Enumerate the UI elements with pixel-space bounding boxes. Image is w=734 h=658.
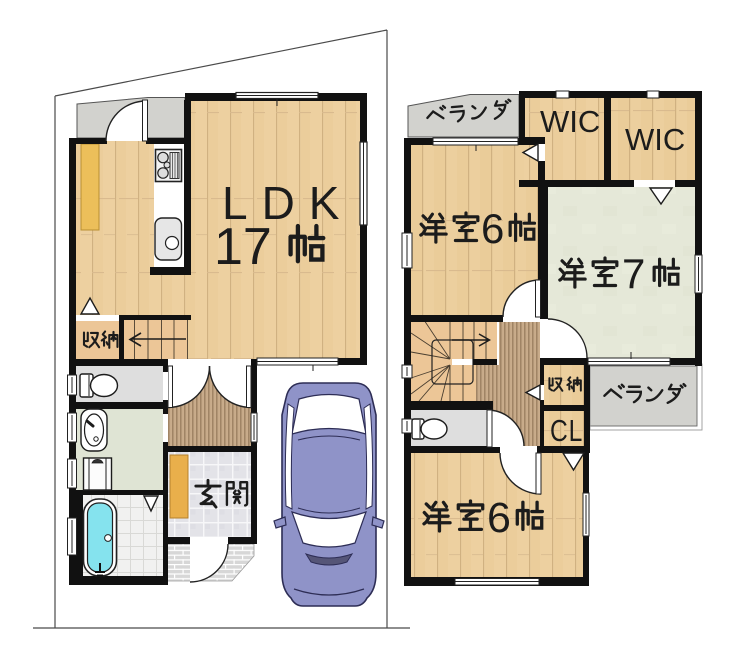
svg-text:7: 7	[622, 250, 645, 297]
svg-text:WIC: WIC	[540, 104, 600, 139]
svg-text:WIC: WIC	[625, 122, 685, 157]
svg-text:17: 17	[214, 218, 272, 276]
svg-text:CL: CL	[550, 414, 583, 448]
svg-text:6: 6	[481, 205, 504, 252]
svg-text:6: 6	[487, 494, 511, 542]
